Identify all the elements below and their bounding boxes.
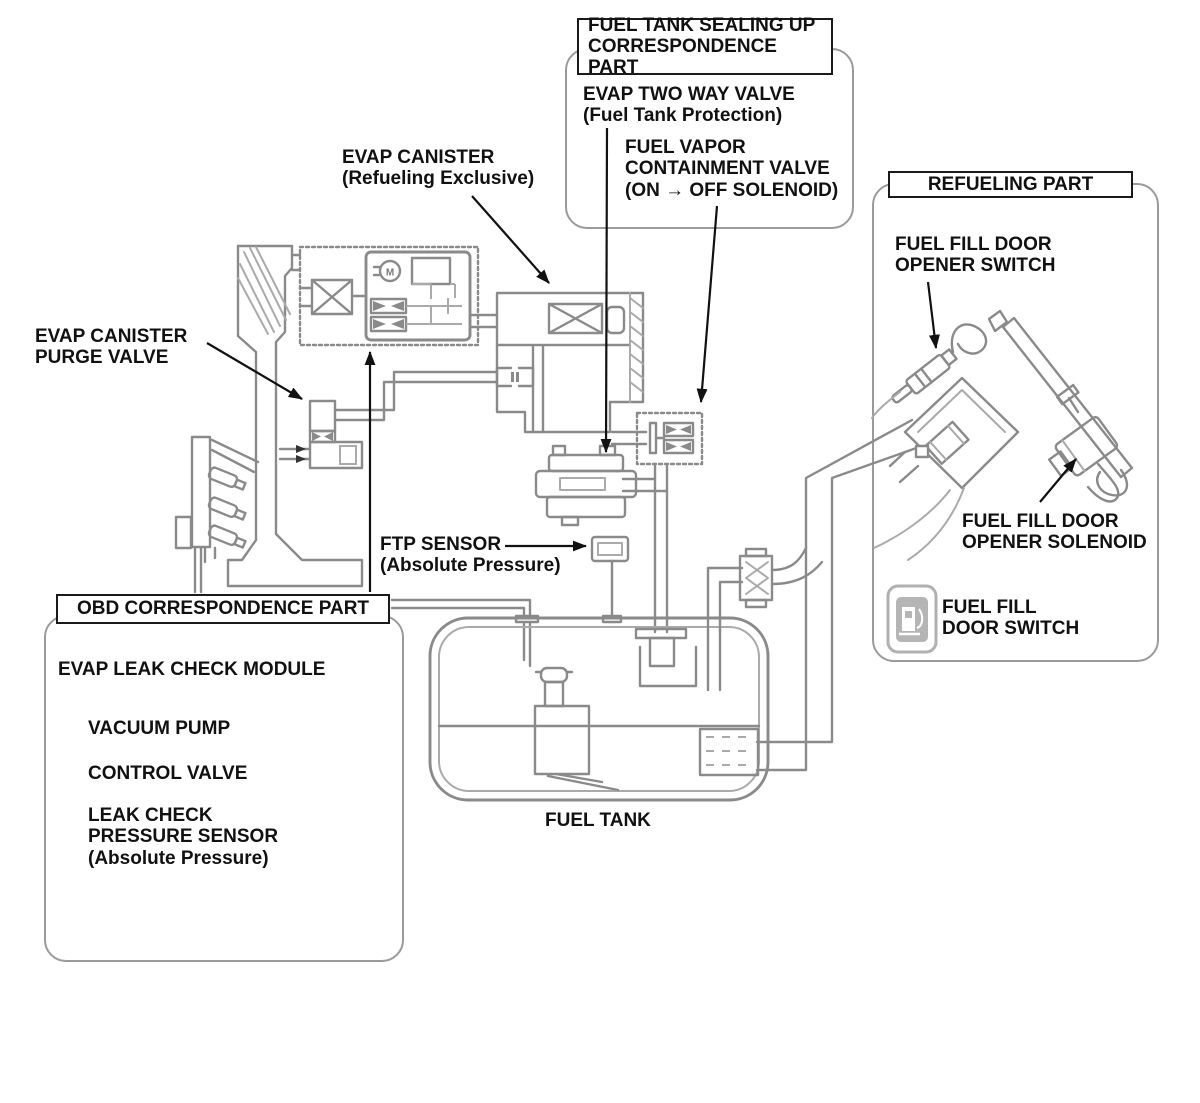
obd-part-title: OBD CORRESPONDENCE PART <box>77 598 369 619</box>
obd-part-title-box: OBD CORRESPONDENCE PART <box>56 594 390 624</box>
evap-canister-label: EVAP CANISTER (Refueling Exclusive) <box>342 147 534 190</box>
evap-leak-check-module-label: EVAP LEAK CHECK MODULE <box>58 659 325 680</box>
evap-canister-purge-valve-label: EVAP CANISTER PURGE VALVE <box>35 326 187 369</box>
fuel-tank-label: FUEL TANK <box>545 810 651 831</box>
containment-valve-drawing <box>612 413 702 632</box>
evap-canister-drawing <box>497 293 643 432</box>
obd-tank-hose <box>392 600 538 666</box>
fuel-tank-drawing <box>430 618 768 800</box>
fuel-fill-door-opener-switch-label: FUEL FILL DOOR OPENER SWITCH <box>895 234 1055 277</box>
sealing-part-title: FUEL TANK SEALING UP CORRESPONDENCE PART <box>588 15 831 79</box>
arrow-containment-valve <box>701 206 717 402</box>
fuel-vapor-containment-valve-label: FUEL VAPOR CONTAINMENT VALVE (ON → OFF S… <box>625 137 838 201</box>
ftp-sensor-label: FTP SENSOR (Absolute Pressure) <box>380 534 561 577</box>
refueling-part-title: REFUELING PART <box>928 174 1093 195</box>
arrow-evap-canister <box>472 196 549 283</box>
two-way-valve-drawing <box>536 446 667 525</box>
fuel-rail-drawing <box>176 437 258 592</box>
arrow-opener-solenoid <box>1040 459 1076 502</box>
engine-intake-drawing <box>228 246 362 586</box>
leak-check-module-drawing: M <box>300 247 497 345</box>
refueling-part-title-box: REFUELING PART <box>888 171 1133 198</box>
diagram-canvas: M <box>0 0 1200 1103</box>
fuel-fill-door-opener-solenoid-label: FUEL FILL DOOR OPENER SOLENOID <box>962 511 1147 554</box>
leak-check-pressure-sensor-label: LEAK CHECK PRESSURE SENSOR (Absolute Pre… <box>88 805 278 869</box>
purge-valve-drawing <box>280 372 497 468</box>
arrow-two-way-valve <box>606 128 607 452</box>
vacuum-pump-label: VACUUM PUMP <box>88 718 230 739</box>
fuel-fill-door-switch-label: FUEL FILL DOOR SWITCH <box>942 597 1079 640</box>
control-valve-label: CONTROL VALVE <box>88 763 247 784</box>
motor-label: M <box>386 268 394 279</box>
fuel-pump-icon <box>888 586 936 652</box>
arrow-opener-switch <box>928 282 936 348</box>
evap-two-way-valve-label: EVAP TWO WAY VALVE (Fuel Tank Protection… <box>583 84 795 127</box>
ftp-sensor-drawing <box>592 537 628 622</box>
sealing-part-title-box: FUEL TANK SEALING UP CORRESPONDENCE PART <box>577 18 833 75</box>
